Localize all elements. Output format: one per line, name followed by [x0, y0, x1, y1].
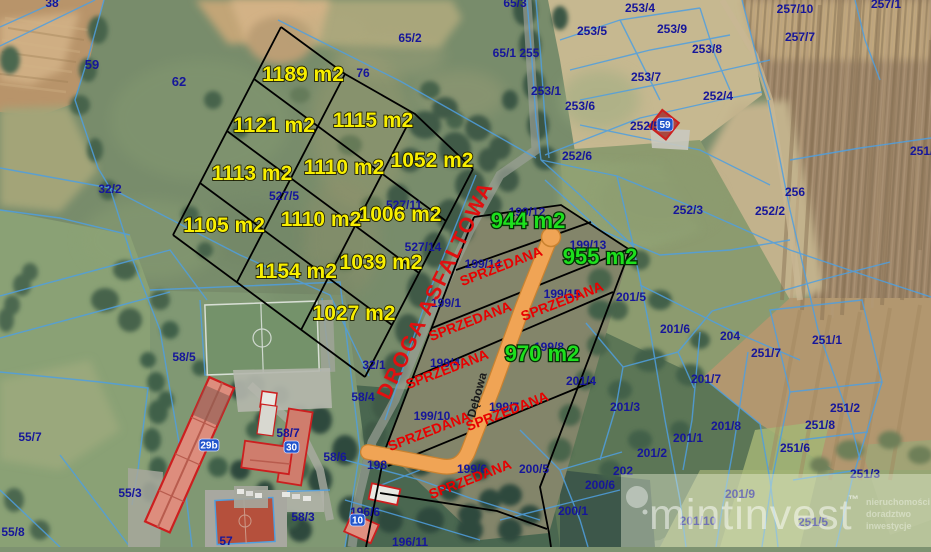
svg-text:251/4: 251/4: [910, 144, 931, 158]
svg-text:65/2: 65/2: [398, 31, 422, 45]
svg-text:251/6: 251/6: [780, 441, 810, 455]
svg-text:257/7: 257/7: [785, 30, 815, 44]
svg-text:1052 m2: 1052 m2: [391, 149, 474, 172]
svg-text:201/4: 201/4: [566, 374, 596, 388]
svg-text:mintinvest: mintinvest: [649, 491, 853, 539]
svg-text:251/7: 251/7: [751, 346, 781, 360]
svg-text:32/1: 32/1: [362, 358, 386, 372]
svg-text:inwestycje: inwestycje: [866, 521, 912, 531]
svg-text:201/8: 201/8: [711, 419, 741, 433]
svg-text:10: 10: [352, 516, 364, 527]
svg-text:30: 30: [286, 443, 298, 454]
svg-text:58/7: 58/7: [276, 426, 300, 440]
svg-text:nieruchomości: nieruchomości: [866, 497, 930, 507]
svg-text:251/8: 251/8: [805, 418, 835, 432]
svg-text:29b: 29b: [200, 441, 217, 452]
svg-text:252/2: 252/2: [755, 204, 785, 218]
svg-text:252/5: 252/5: [630, 119, 660, 133]
svg-text:58/4: 58/4: [351, 390, 375, 404]
svg-text:201/2: 201/2: [637, 446, 667, 460]
svg-text:251/1: 251/1: [812, 333, 842, 347]
svg-text:253/7: 253/7: [631, 70, 661, 84]
svg-text:251/2: 251/2: [830, 401, 860, 415]
svg-text:944 m2: 944 m2: [491, 208, 566, 233]
svg-text:196/11: 196/11: [392, 535, 428, 547]
svg-text:1154 m2: 1154 m2: [255, 260, 337, 283]
svg-text:198: 198: [367, 458, 387, 472]
svg-text:1110 m2: 1110 m2: [281, 208, 362, 231]
svg-text:253/8: 253/8: [692, 42, 722, 56]
svg-text:257/10: 257/10: [777, 2, 814, 16]
svg-text:200/5: 200/5: [519, 462, 549, 476]
svg-text:55/8: 55/8: [1, 525, 25, 539]
svg-text:955 m2: 955 m2: [563, 244, 638, 269]
svg-text:201/7: 201/7: [691, 372, 721, 386]
svg-text:57: 57: [219, 534, 233, 547]
svg-text:65/3: 65/3: [503, 0, 527, 10]
svg-text:200/6: 200/6: [585, 478, 615, 492]
svg-text:55/3: 55/3: [118, 486, 142, 500]
svg-text:256: 256: [785, 185, 805, 199]
svg-text:1105 m2: 1105 m2: [183, 214, 265, 237]
svg-text:1121 m2: 1121 m2: [233, 114, 315, 137]
svg-text:62: 62: [172, 74, 186, 89]
svg-text:200/1: 200/1: [558, 504, 588, 518]
svg-text:1115 m2: 1115 m2: [333, 109, 414, 132]
svg-text:58/3: 58/3: [291, 510, 315, 524]
svg-text:253/4: 253/4: [625, 1, 655, 15]
svg-text:58/5: 58/5: [172, 350, 196, 364]
svg-text:201/1: 201/1: [673, 431, 703, 445]
svg-text:201/6: 201/6: [660, 322, 690, 336]
svg-text:253/1: 253/1: [531, 84, 561, 98]
svg-text:253/9: 253/9: [657, 22, 687, 36]
svg-text:1110 m2: 1110 m2: [304, 156, 385, 179]
svg-text:32/2: 32/2: [98, 182, 122, 196]
svg-text:65/1 255: 65/1 255: [493, 46, 540, 60]
svg-text:58/6: 58/6: [323, 450, 347, 464]
svg-text:1039 m2: 1039 m2: [340, 251, 423, 274]
svg-text:201/5: 201/5: [616, 290, 646, 304]
svg-text:253/6: 253/6: [565, 99, 595, 113]
svg-text:76: 76: [356, 66, 370, 80]
svg-text:1027 m2: 1027 m2: [313, 302, 396, 325]
svg-text:55/7: 55/7: [18, 430, 42, 444]
svg-text:204: 204: [720, 329, 740, 343]
svg-text:59: 59: [85, 57, 99, 72]
svg-text:™: ™: [848, 494, 859, 506]
svg-text:257/1: 257/1: [871, 0, 901, 11]
svg-text:1006 m2: 1006 m2: [359, 203, 442, 226]
svg-text:970 m2: 970 m2: [505, 341, 580, 366]
svg-text:253/5: 253/5: [577, 24, 607, 38]
svg-text:252/4: 252/4: [703, 89, 733, 103]
svg-text:38: 38: [45, 0, 59, 10]
svg-text:doradztwo: doradztwo: [866, 509, 911, 519]
svg-text:59: 59: [659, 120, 671, 131]
svg-text:252/6: 252/6: [562, 149, 592, 163]
svg-text:1189 m2: 1189 m2: [262, 63, 344, 86]
svg-text:201/3: 201/3: [610, 400, 640, 414]
svg-text:527/5: 527/5: [269, 189, 299, 203]
svg-text:252/3: 252/3: [673, 203, 703, 217]
svg-text:1113 m2: 1113 m2: [212, 162, 293, 185]
